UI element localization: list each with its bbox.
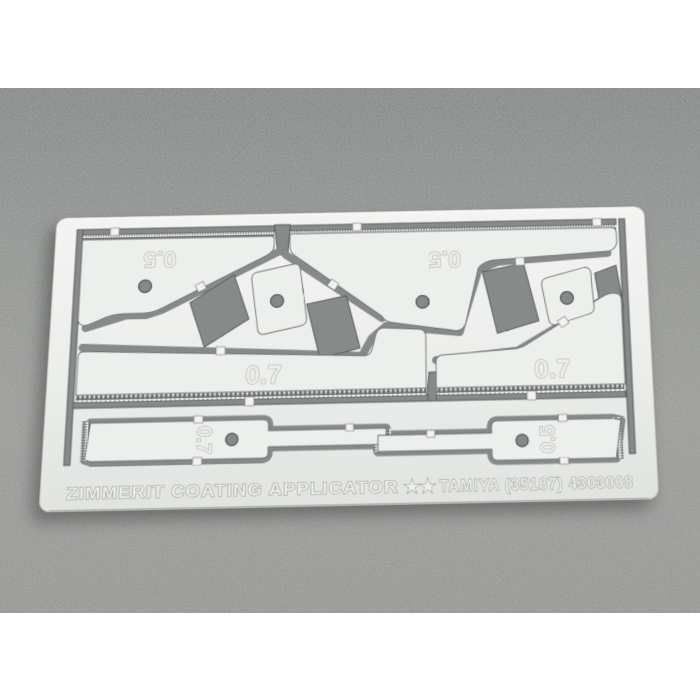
etched-plate-wrapper: 0.5 0.5 0.7 0.7 0.7 0.5 ZIMMERIT COATING… — [38, 206, 659, 512]
label-07-strip-left: 0.7 — [192, 426, 216, 455]
tab — [427, 430, 435, 437]
tab — [592, 218, 601, 226]
hole — [226, 433, 239, 445]
tab — [558, 414, 567, 421]
tab — [216, 347, 225, 355]
hole — [270, 295, 283, 308]
tab — [194, 416, 203, 423]
tab — [346, 424, 354, 431]
label-05-strip-right: 0.5 — [537, 425, 561, 454]
tamiya-twin-star-logo-icon: ★★ — [405, 478, 437, 497]
label-07-mid-right: 0.7 — [534, 355, 571, 384]
tab — [192, 457, 201, 464]
label-05-top-left: 0.5 — [143, 247, 177, 273]
label-05-top-right: 0.5 — [428, 246, 461, 272]
screenshot: 0.5 0.5 0.7 0.7 0.7 0.5 ZIMMERIT COATING… — [0, 0, 700, 700]
hole — [560, 292, 573, 305]
hole — [516, 434, 528, 446]
hole — [416, 295, 429, 308]
tab — [527, 391, 536, 400]
etched-plate: 0.5 0.5 0.7 0.7 0.7 0.5 ZIMMERIT COATING… — [38, 206, 659, 512]
tab — [245, 397, 254, 406]
label-07-mid-left: 0.7 — [245, 361, 282, 390]
tab — [110, 228, 119, 236]
product-photo-background: 0.5 0.5 0.7 0.7 0.7 0.5 ZIMMERIT COATING… — [0, 88, 700, 613]
tab — [515, 258, 524, 266]
hole — [138, 280, 151, 293]
tab — [559, 457, 568, 464]
tab — [353, 223, 362, 231]
